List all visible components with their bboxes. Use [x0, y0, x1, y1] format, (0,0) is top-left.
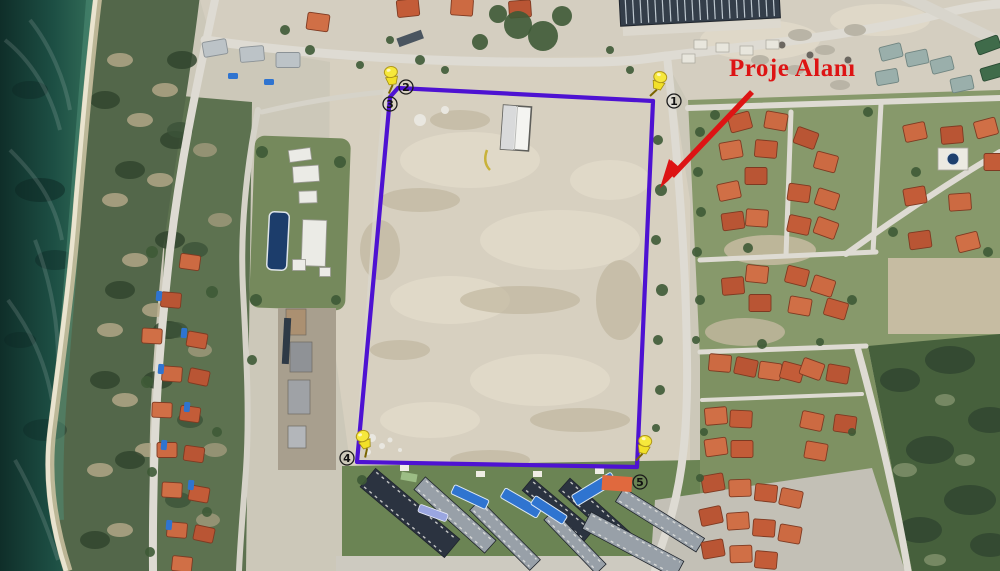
construction-building [288, 380, 310, 414]
construction-building [290, 342, 312, 372]
rubble [844, 24, 866, 36]
villa-roof [721, 211, 745, 231]
villa-roof [162, 366, 183, 382]
shed [476, 471, 485, 477]
villa-pool [188, 480, 195, 490]
tree [696, 474, 704, 482]
tree [848, 428, 856, 436]
rock-patch [107, 523, 133, 537]
villa-roof [940, 126, 963, 145]
white-building [288, 148, 311, 163]
annotation-label: Proje Alanı [729, 56, 856, 81]
tree [141, 376, 153, 388]
villa-roof [179, 253, 201, 271]
villa-roof [731, 441, 753, 458]
villa-roof [450, 0, 473, 16]
scrub-bush [944, 485, 996, 515]
villa-pool [158, 364, 165, 374]
villa-roof [708, 354, 731, 373]
tree [656, 284, 668, 296]
marker-number: 4 [343, 452, 351, 465]
villa-roof [186, 331, 208, 349]
tree [653, 335, 663, 345]
tree [983, 247, 993, 257]
shed [716, 43, 729, 52]
villa-roof [179, 405, 201, 423]
villa-pool [156, 291, 163, 301]
villa-roof [183, 445, 205, 463]
dark-track [370, 340, 430, 360]
white-building [299, 191, 317, 204]
tennis-court [601, 475, 632, 492]
villa-roof [726, 512, 749, 530]
scrub-gap [955, 454, 975, 466]
villa-roof [788, 296, 813, 317]
villa-roof [701, 473, 726, 494]
satellite-image: 12345 [0, 0, 1000, 571]
tree [695, 127, 705, 137]
scrub-bush [925, 346, 975, 374]
round-pool [947, 153, 959, 165]
villa-roof [908, 230, 932, 250]
villa-roof [758, 361, 782, 381]
dark-track [380, 188, 460, 212]
scrub-bush [105, 281, 135, 299]
dirt-patch [203, 443, 227, 457]
villa-pool [264, 79, 274, 85]
tree [441, 66, 449, 74]
rubble [788, 29, 812, 41]
villa-roof [804, 441, 829, 462]
tree [528, 21, 558, 51]
dark-track [430, 110, 490, 130]
villa-roof [152, 402, 173, 418]
white-building [292, 165, 319, 183]
villa-roof [754, 551, 777, 570]
tree [489, 5, 507, 23]
tree [655, 385, 665, 395]
warehouse-building [500, 105, 531, 151]
white-building [320, 268, 331, 277]
tree [145, 547, 155, 557]
tree [816, 338, 824, 346]
tree [472, 34, 488, 50]
tree [695, 295, 705, 305]
villa-roof [730, 410, 753, 428]
debris [441, 106, 449, 114]
empty-lot [705, 318, 785, 346]
rock-patch [127, 113, 153, 127]
tree [331, 295, 341, 305]
dirt-patch [208, 213, 232, 227]
debris [379, 443, 385, 449]
villa-roof [704, 407, 727, 426]
tree [693, 167, 703, 177]
rock-patch [102, 193, 128, 207]
tree [552, 6, 572, 26]
tree [356, 61, 364, 69]
tree [357, 475, 367, 485]
villa-roof [721, 277, 744, 296]
rock-patch [107, 53, 133, 67]
villa-roof [142, 328, 163, 344]
satellite-screenshot: 12345 Proje Alanı [0, 0, 1000, 571]
tree [250, 294, 262, 306]
white-building [293, 260, 306, 271]
tree [212, 427, 222, 437]
villa-roof [752, 519, 775, 537]
shed [766, 40, 779, 49]
villa-roof [787, 183, 811, 203]
villa-roof [754, 140, 777, 159]
villa-roof [701, 539, 726, 560]
rock-patch [152, 83, 178, 97]
tree [626, 66, 634, 74]
shed [533, 471, 542, 477]
tree [863, 107, 873, 117]
villa-roof [704, 437, 728, 457]
tree [911, 167, 921, 177]
dark-track [460, 286, 580, 314]
empty-lot [888, 258, 1000, 334]
rock-patch [112, 393, 138, 407]
tree [147, 467, 157, 477]
villa-roof [162, 482, 183, 498]
tree [743, 243, 753, 253]
rock-patch [87, 463, 113, 477]
villa-pool [184, 402, 191, 412]
villa-pool [161, 440, 168, 450]
shed [595, 468, 604, 474]
scrub-gap [893, 463, 917, 477]
villa-pool [228, 73, 238, 79]
scrub-bush [115, 161, 145, 179]
villa-roof [826, 364, 851, 385]
villa-roof [745, 209, 768, 227]
villa-roof [171, 555, 192, 571]
villa-pool [166, 520, 173, 530]
villa-roof [749, 295, 771, 312]
villa-roof [984, 154, 1000, 171]
tree [280, 25, 290, 35]
tree [334, 156, 346, 168]
scrub-bush [167, 51, 197, 69]
tree [696, 207, 706, 217]
villa-roof [745, 168, 767, 185]
villa-roof [903, 186, 928, 207]
villa-roof [778, 524, 803, 545]
dark-track [596, 260, 644, 340]
tree [247, 355, 257, 365]
villa-roof [730, 545, 753, 563]
scrub-bush [80, 531, 110, 549]
debris [388, 438, 393, 443]
tree [847, 295, 857, 305]
marker-number: 5 [636, 476, 644, 489]
marker-number: 1 [670, 95, 678, 108]
villa-pool [181, 328, 188, 338]
villa-roof [729, 479, 752, 497]
scrub-gap [924, 554, 946, 566]
villa-roof [239, 45, 264, 62]
scrub-bush [90, 371, 120, 389]
tree [692, 336, 700, 344]
tree [256, 146, 268, 158]
marker-number: 2 [402, 81, 410, 94]
construction-building [288, 426, 306, 448]
villa-roof [160, 292, 181, 309]
shed [400, 465, 409, 471]
tree [888, 227, 898, 237]
tree [206, 286, 218, 298]
tree [146, 246, 158, 258]
tree [386, 36, 394, 44]
scrub-gap [935, 394, 955, 406]
tree [504, 11, 532, 39]
rubble [815, 45, 835, 55]
tree [305, 45, 315, 55]
villa-roof [745, 264, 769, 283]
rock-patch [122, 253, 148, 267]
road-bottom-band [336, 556, 660, 571]
sea-dark-patch [15, 178, 65, 202]
tree [652, 424, 660, 432]
light-sand [570, 160, 650, 200]
villa-roof [306, 12, 330, 32]
debris [414, 114, 426, 126]
scrub-bush [906, 436, 954, 464]
villa-roof [276, 53, 300, 68]
rock-patch [97, 323, 123, 337]
rock-patch [147, 173, 173, 187]
villa-roof [754, 483, 778, 502]
marker-number: 3 [386, 98, 394, 111]
large-pool [266, 212, 289, 271]
tree [653, 135, 663, 145]
dirt-patch [193, 143, 217, 157]
shed [740, 46, 753, 55]
villa-roof [948, 193, 971, 211]
tree [606, 46, 614, 54]
tree [692, 247, 702, 257]
dark-track [530, 408, 630, 432]
tree [651, 235, 661, 245]
tree [415, 55, 425, 65]
shed [694, 40, 707, 49]
tree [700, 428, 708, 436]
villa-roof [764, 111, 789, 132]
rubble [779, 42, 786, 49]
light-sand [470, 354, 610, 406]
tree [757, 339, 767, 349]
shed [682, 54, 695, 63]
scrub-bush [880, 368, 920, 392]
scrub-bush [115, 451, 145, 469]
villa-roof [396, 0, 420, 18]
tree [710, 110, 720, 120]
debris [398, 448, 402, 452]
light-sand [380, 402, 480, 438]
scrub-bush [90, 91, 120, 109]
tree [202, 507, 212, 517]
villa-roof [719, 140, 744, 161]
